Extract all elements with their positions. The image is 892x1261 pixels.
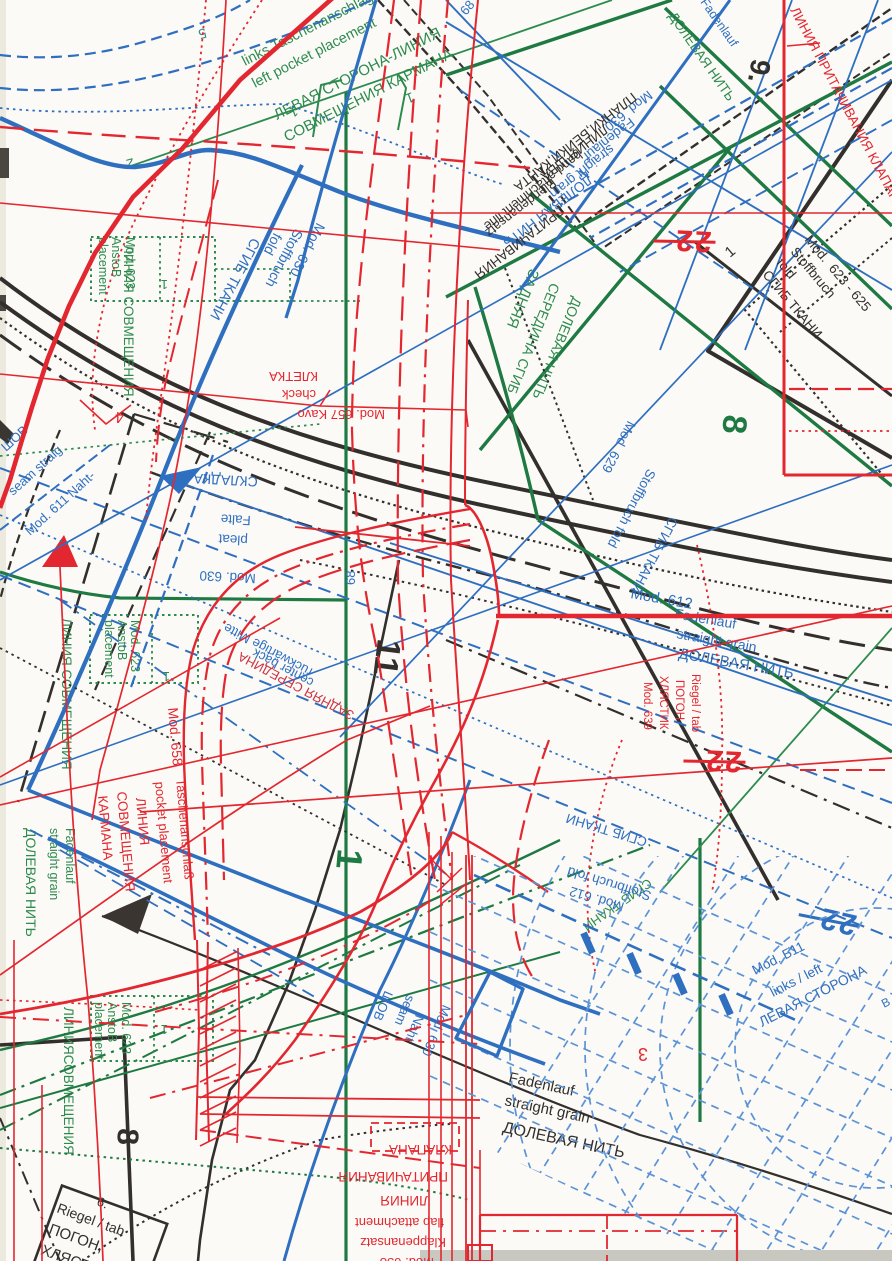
svg-text:3: 3 [638,1044,648,1064]
svg-text:ДОЛЕВАЯ НИТЬ: ДОЛЕВАЯ НИТЬ [23,828,39,937]
svg-text:ХЛЯСТИК: ХЛЯСТИК [657,676,669,730]
svg-text:Mod. 630: Mod. 630 [199,568,256,586]
svg-text:Mod. 623: Mod. 623 [119,1002,133,1054]
svg-text:flap attachment: flap attachment [355,1215,444,1230]
svg-text:ЛИНИЯ: ЛИНИЯ [380,1193,428,1208]
svg-text:AnstoB: AnstoB [105,1002,119,1042]
svg-text:Mod. 657 Kavo: Mod. 657 Kavo [298,407,385,422]
svg-text:8: 8 [714,413,754,435]
svg-text:placement: placement [102,620,116,678]
svg-text:68: 68 [343,571,358,585]
svg-text:Riegel / tab: Riegel / tab [689,674,701,732]
svg-text:КЛЕТКА: КЛЕТКА [269,369,318,384]
svg-text:КЛАПАНА: КЛАПАНА [389,1142,452,1157]
svg-text:ПОГОН: ПОГОН [673,680,685,720]
svg-text:Klappenansatz: Klappenansatz [360,1235,446,1250]
svg-text:1: 1 [161,1022,168,1037]
svg-text:check: check [282,387,316,402]
svg-text:Mod. 639: Mod. 639 [641,682,653,730]
svg-text:ПРИТАЧИВАНИЯ: ПРИТАЧИВАНИЯ [338,1169,448,1184]
svg-text:СКЛАДКА: СКЛАДКА [193,471,259,490]
svg-text:AnstoB: AnstoB [109,237,123,277]
svg-text:pleat: pleat [218,531,248,548]
svg-text:1: 1 [161,277,168,292]
svg-text:ЛИНИЯСОВМЕЩЕНИЯ: ЛИНИЯСОВМЕЩЕНИЯ [61,1007,76,1155]
svg-text:1: 1 [328,847,371,871]
svg-text:ЛИНИЯ СОВМЕЩЕНИЯ: ЛИНИЯ СОВМЕЩЕНИЯ [121,245,136,397]
svg-text:Mod. 658: Mod. 658 [380,1255,434,1261]
svg-text:placement: placement [92,1002,106,1060]
svg-text:8: 8 [110,1128,144,1146]
svg-text:Falte: Falte [220,511,251,528]
